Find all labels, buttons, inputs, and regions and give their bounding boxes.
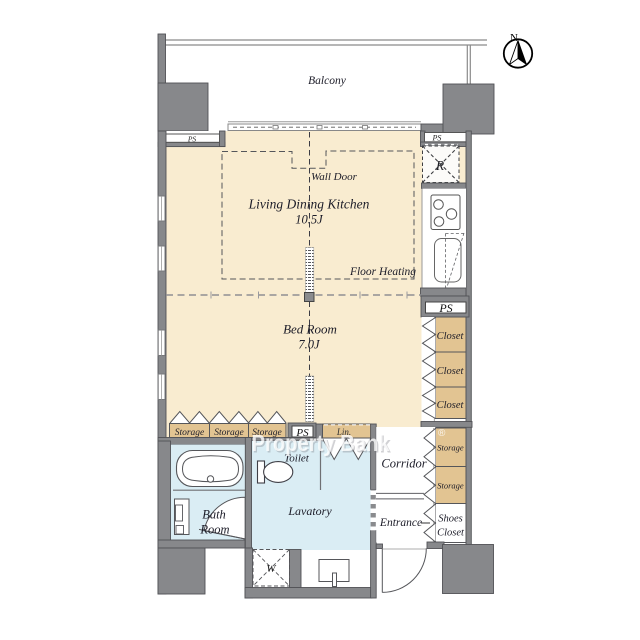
svg-text:Storage: Storage <box>437 443 464 453</box>
svg-text:Room: Room <box>199 523 229 537</box>
svg-text:7.0J: 7.0J <box>298 338 321 352</box>
svg-text:Storage: Storage <box>214 428 244 438</box>
svg-text:R: R <box>435 158 445 173</box>
svg-text:Bed Room: Bed Room <box>283 322 337 337</box>
svg-text:Property Bank: Property Bank <box>252 430 390 456</box>
svg-text:®: ® <box>438 428 446 439</box>
svg-text:Closet: Closet <box>437 528 465 539</box>
svg-text:PS: PS <box>187 134 197 143</box>
svg-text:Storage: Storage <box>437 481 464 491</box>
svg-text:Corridor: Corridor <box>381 457 426 471</box>
svg-text:N: N <box>510 32 518 44</box>
svg-text:PS: PS <box>432 133 442 142</box>
svg-text:Closet: Closet <box>437 400 465 411</box>
svg-text:Living Dining Kitchen: Living Dining Kitchen <box>248 197 370 212</box>
svg-text:Closet: Closet <box>437 366 465 377</box>
svg-text:PS: PS <box>438 301 452 315</box>
svg-text:Storage: Storage <box>175 428 205 438</box>
svg-text:Floor Heating: Floor Heating <box>349 266 416 278</box>
svg-text:Lavatory: Lavatory <box>287 504 332 518</box>
svg-text:Closet: Closet <box>437 331 465 342</box>
svg-text:W: W <box>266 563 276 575</box>
svg-text:Bath: Bath <box>202 508 226 522</box>
svg-text:Balcony: Balcony <box>308 75 347 87</box>
svg-text:Entrance: Entrance <box>379 517 422 529</box>
svg-text:Shoes: Shoes <box>438 514 463 525</box>
svg-text:Wall Door: Wall Door <box>311 171 357 183</box>
